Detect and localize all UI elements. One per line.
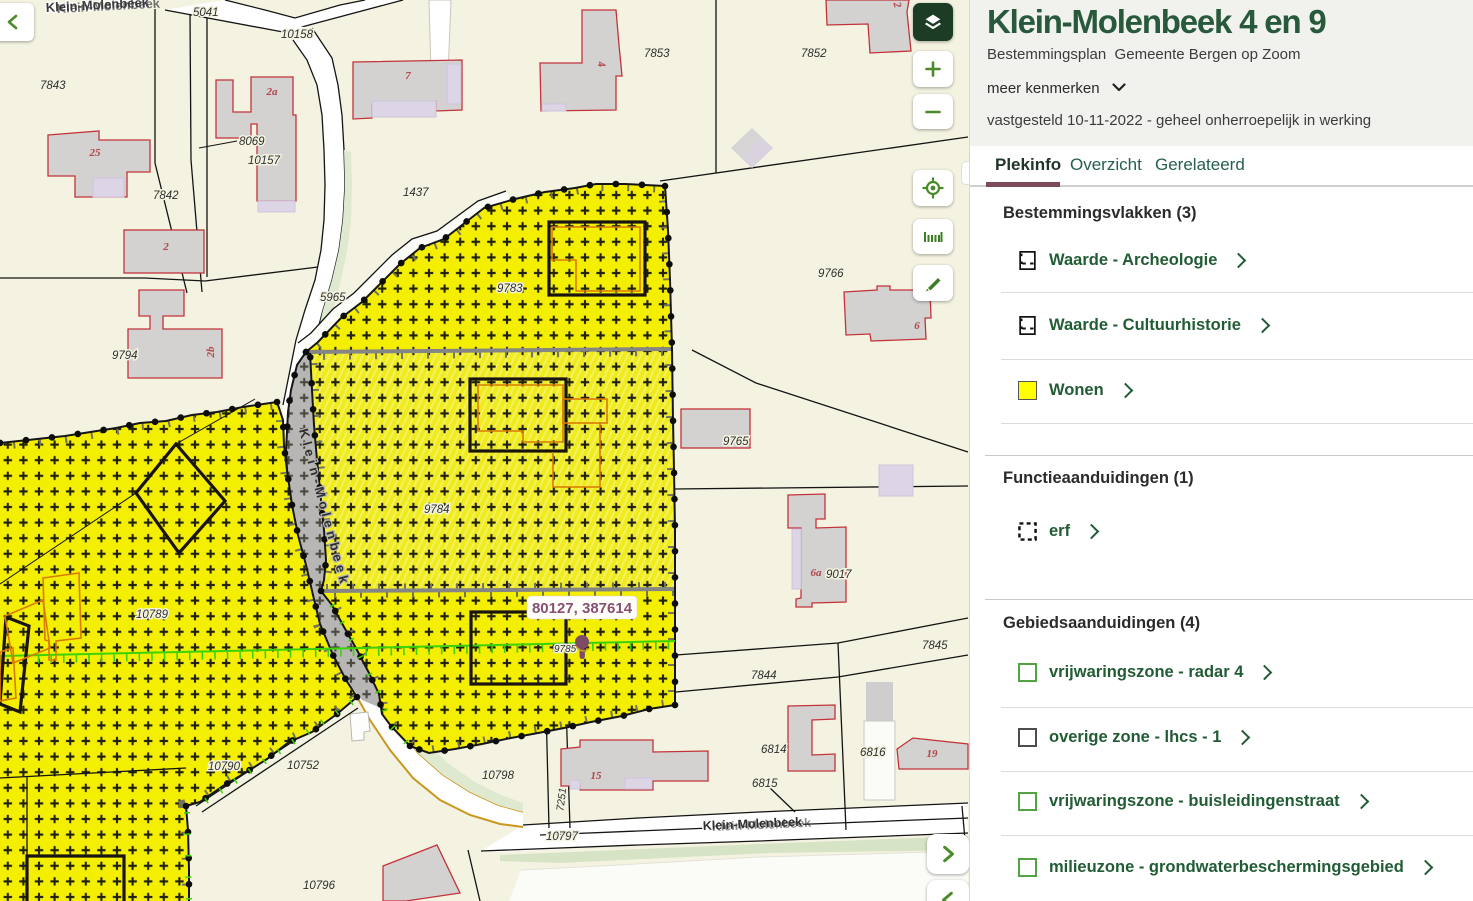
svg-text:10157: 10157 — [248, 155, 281, 167]
svg-text:7845: 7845 — [922, 640, 948, 652]
svg-text:9017: 9017 — [826, 569, 852, 581]
svg-text:8069: 8069 — [239, 136, 265, 148]
svg-text:7842: 7842 — [153, 190, 179, 202]
svg-text:10752: 10752 — [287, 760, 320, 772]
svg-text:10796: 10796 — [303, 880, 336, 892]
svg-text:19: 19 — [927, 748, 939, 760]
svg-text:7852: 7852 — [801, 48, 827, 60]
svg-text:15: 15 — [591, 770, 603, 782]
svg-text:6815: 6815 — [752, 778, 778, 790]
svg-text:9765: 9765 — [723, 436, 749, 448]
svg-text:6a: 6a — [811, 567, 823, 579]
svg-text:9794: 9794 — [112, 350, 138, 362]
svg-text:10798: 10798 — [482, 770, 515, 782]
svg-text:6814: 6814 — [761, 744, 787, 756]
svg-text:9783: 9783 — [497, 283, 523, 295]
svg-text:7853: 7853 — [644, 48, 670, 60]
svg-text:10797: 10797 — [546, 831, 579, 843]
svg-text:7843: 7843 — [40, 80, 66, 92]
svg-text:6816: 6816 — [860, 747, 886, 759]
svg-text:10789: 10789 — [136, 609, 169, 621]
svg-text:9785: 9785 — [554, 644, 577, 655]
svg-text:2: 2 — [162, 241, 169, 253]
svg-text:9766: 9766 — [818, 268, 844, 280]
svg-text:10158: 10158 — [281, 29, 314, 41]
svg-text:5965: 5965 — [320, 292, 346, 304]
svg-text:10790: 10790 — [208, 761, 241, 773]
svg-text:2a: 2a — [266, 86, 279, 98]
svg-text:25: 25 — [89, 147, 102, 159]
svg-text:7844: 7844 — [751, 670, 777, 682]
svg-text:2b: 2b — [205, 346, 217, 359]
svg-text:6: 6 — [914, 320, 920, 332]
svg-text:7: 7 — [405, 70, 411, 82]
svg-text:80127, 387614: 80127, 387614 — [532, 600, 633, 617]
svg-text:5041: 5041 — [193, 7, 219, 19]
svg-text:9784: 9784 — [424, 504, 450, 516]
svg-text:1437: 1437 — [403, 187, 429, 199]
